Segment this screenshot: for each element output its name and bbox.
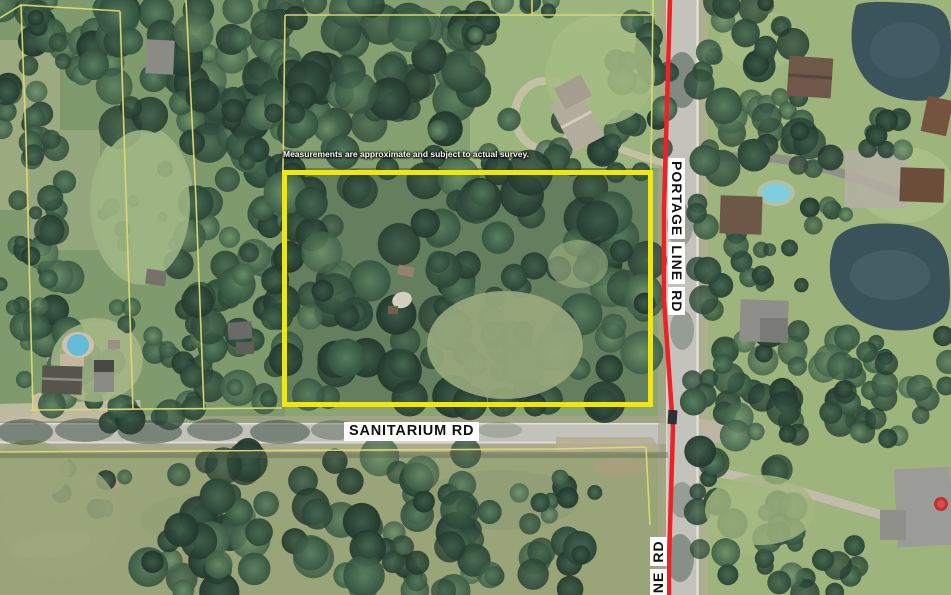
road-label-portage-line-south-clipped: INERD (650, 539, 667, 595)
disclaimer-text: Measurements are approximate and subject… (283, 149, 529, 159)
parcel-highlight-rectangle (282, 170, 653, 407)
vehicle (668, 410, 678, 425)
road-label-portage-line: PORTAGELINERD (666, 158, 685, 300)
road-label-sanitarium: SANITARIUM RD (344, 422, 479, 441)
aerial-map: Measurements are approximate and subject… (0, 0, 951, 595)
